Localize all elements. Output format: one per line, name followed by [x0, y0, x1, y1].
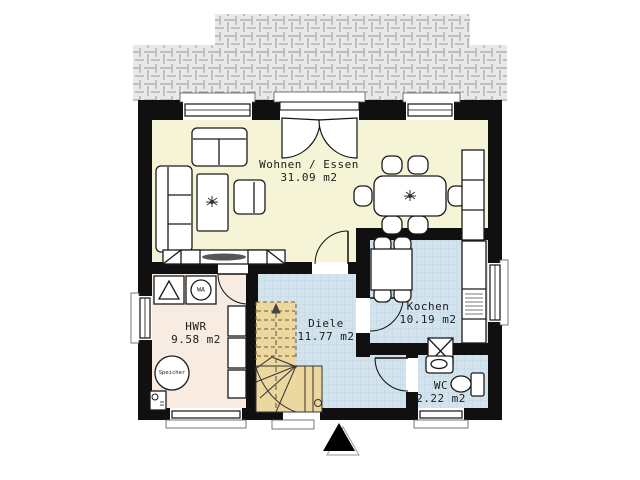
room-label-wohnen-essen: Wohnen / Essen 31.09 m2	[259, 158, 359, 184]
floor-plan-drawing	[0, 0, 640, 480]
room-label-kochen: Kochen 10.19 m2	[400, 300, 457, 326]
room-name: Kochen	[400, 300, 457, 313]
room-label-wc: WC 2.22 m2	[416, 379, 466, 405]
window-top-right	[403, 93, 460, 120]
room-label-diele: Diele 11.77 m2	[298, 317, 355, 343]
room-area: 9.58 m2	[171, 333, 221, 346]
sofa-two-seat	[192, 128, 247, 166]
storage-tank-text: Speicher	[159, 370, 186, 376]
window-top-left	[180, 93, 255, 120]
armchair	[234, 180, 265, 214]
washbasin-icon	[426, 356, 453, 373]
window-right-kitchen	[488, 260, 508, 325]
room-name: HWR	[171, 320, 221, 333]
kitchen-counter	[462, 241, 486, 343]
floor-plan: Wohnen / Essen 31.09 m2 Kochen 10.19 m2 …	[0, 0, 640, 480]
north-arrow-icon	[323, 423, 359, 455]
room-area: 11.77 m2	[298, 330, 355, 343]
window-left-utility	[131, 293, 152, 343]
washing-machine-label: WA	[197, 287, 205, 294]
room-area: 31.09 m2	[259, 171, 359, 184]
room-label-hwr: HWR 9.58 m2	[171, 320, 221, 346]
heater-icon	[150, 391, 166, 410]
terrace-hatching	[133, 14, 507, 101]
washing-machine-text: WA	[197, 287, 205, 294]
room-area: 2.22 m2	[416, 392, 466, 405]
laundry-sink-icon	[154, 276, 184, 304]
room-name: Diele	[298, 317, 355, 330]
window-bottom-utility	[166, 408, 246, 428]
room-name: WC	[416, 379, 466, 392]
tv-icon	[202, 254, 246, 261]
storage-tank-label: Speicher	[159, 370, 186, 376]
kitchen-table	[371, 249, 412, 290]
sofa-three-seat	[156, 166, 192, 252]
room-area: 10.19 m2	[400, 313, 457, 326]
dining-shelf-unit	[462, 150, 484, 240]
room-name: Wohnen / Essen	[259, 158, 359, 171]
utility-shelves	[228, 306, 246, 398]
window-bottom-wc	[414, 408, 468, 428]
tv-sideboard	[163, 250, 285, 264]
